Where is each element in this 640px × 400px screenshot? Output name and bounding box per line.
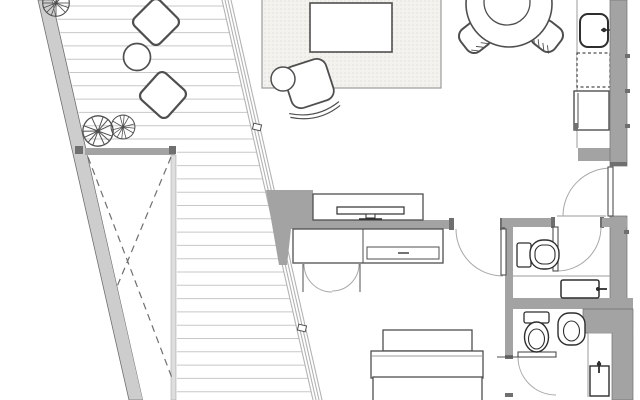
void-wall-jamb-right: [169, 146, 176, 154]
slider-handle-icon: [252, 123, 261, 131]
bathroom-top-wall-end: [602, 218, 627, 227]
media-wall: [291, 220, 453, 229]
terrace-pouf: [131, 0, 182, 47]
window-mark: [625, 89, 630, 93]
window-mark: [625, 124, 630, 128]
door-jamb: [505, 393, 513, 397]
floor-plan-page: [0, 0, 640, 400]
floor-plan-drawing: [0, 0, 640, 400]
bidet: [558, 313, 585, 345]
faucet-icon: [602, 28, 606, 32]
bathroom-left-wall-lower: [505, 309, 513, 358]
tv-sideboard-living-side: [313, 194, 423, 220]
bathroom-upper-door: [553, 227, 601, 271]
toilet: [517, 240, 559, 269]
entry-door: [557, 167, 613, 216]
right-wall-upper: [610, 0, 627, 166]
terrace-side-table: [124, 44, 151, 71]
right-wall-mid: [610, 216, 627, 300]
shower-niche: [588, 333, 612, 397]
washbasin: [561, 280, 607, 298]
window-mark: [625, 54, 630, 58]
slider-handle-icon: [297, 324, 306, 332]
double-bed: [371, 330, 483, 400]
bed-head: [371, 351, 483, 378]
dining-area: [455, 0, 566, 57]
window-mark: [624, 230, 629, 234]
round-ottoman: [271, 67, 295, 91]
toilet: [524, 312, 549, 352]
living-room: [262, 0, 441, 125]
door-jamb: [551, 217, 555, 228]
cooktop: [577, 53, 610, 87]
wardrobe-sideboard: [293, 229, 443, 263]
tap-icon: [597, 362, 601, 366]
void-right-edge: [171, 155, 176, 400]
void-wall-jamb-left: [75, 146, 83, 154]
bedroom-door: [456, 229, 506, 276]
bathroom-top-wall: [502, 218, 553, 227]
pillow: [383, 330, 472, 351]
tv: [337, 207, 404, 214]
bathroom-mid-wall: [505, 298, 633, 309]
entry-opening-cap: [610, 162, 627, 166]
void-top-wall: [85, 148, 175, 155]
bed-body: [373, 377, 482, 400]
tv-stand: [366, 214, 375, 218]
door-jamb: [449, 218, 454, 230]
coffee-table: [310, 3, 392, 52]
wardrobe-double-doors: [303, 264, 360, 292]
oven: [574, 91, 609, 130]
